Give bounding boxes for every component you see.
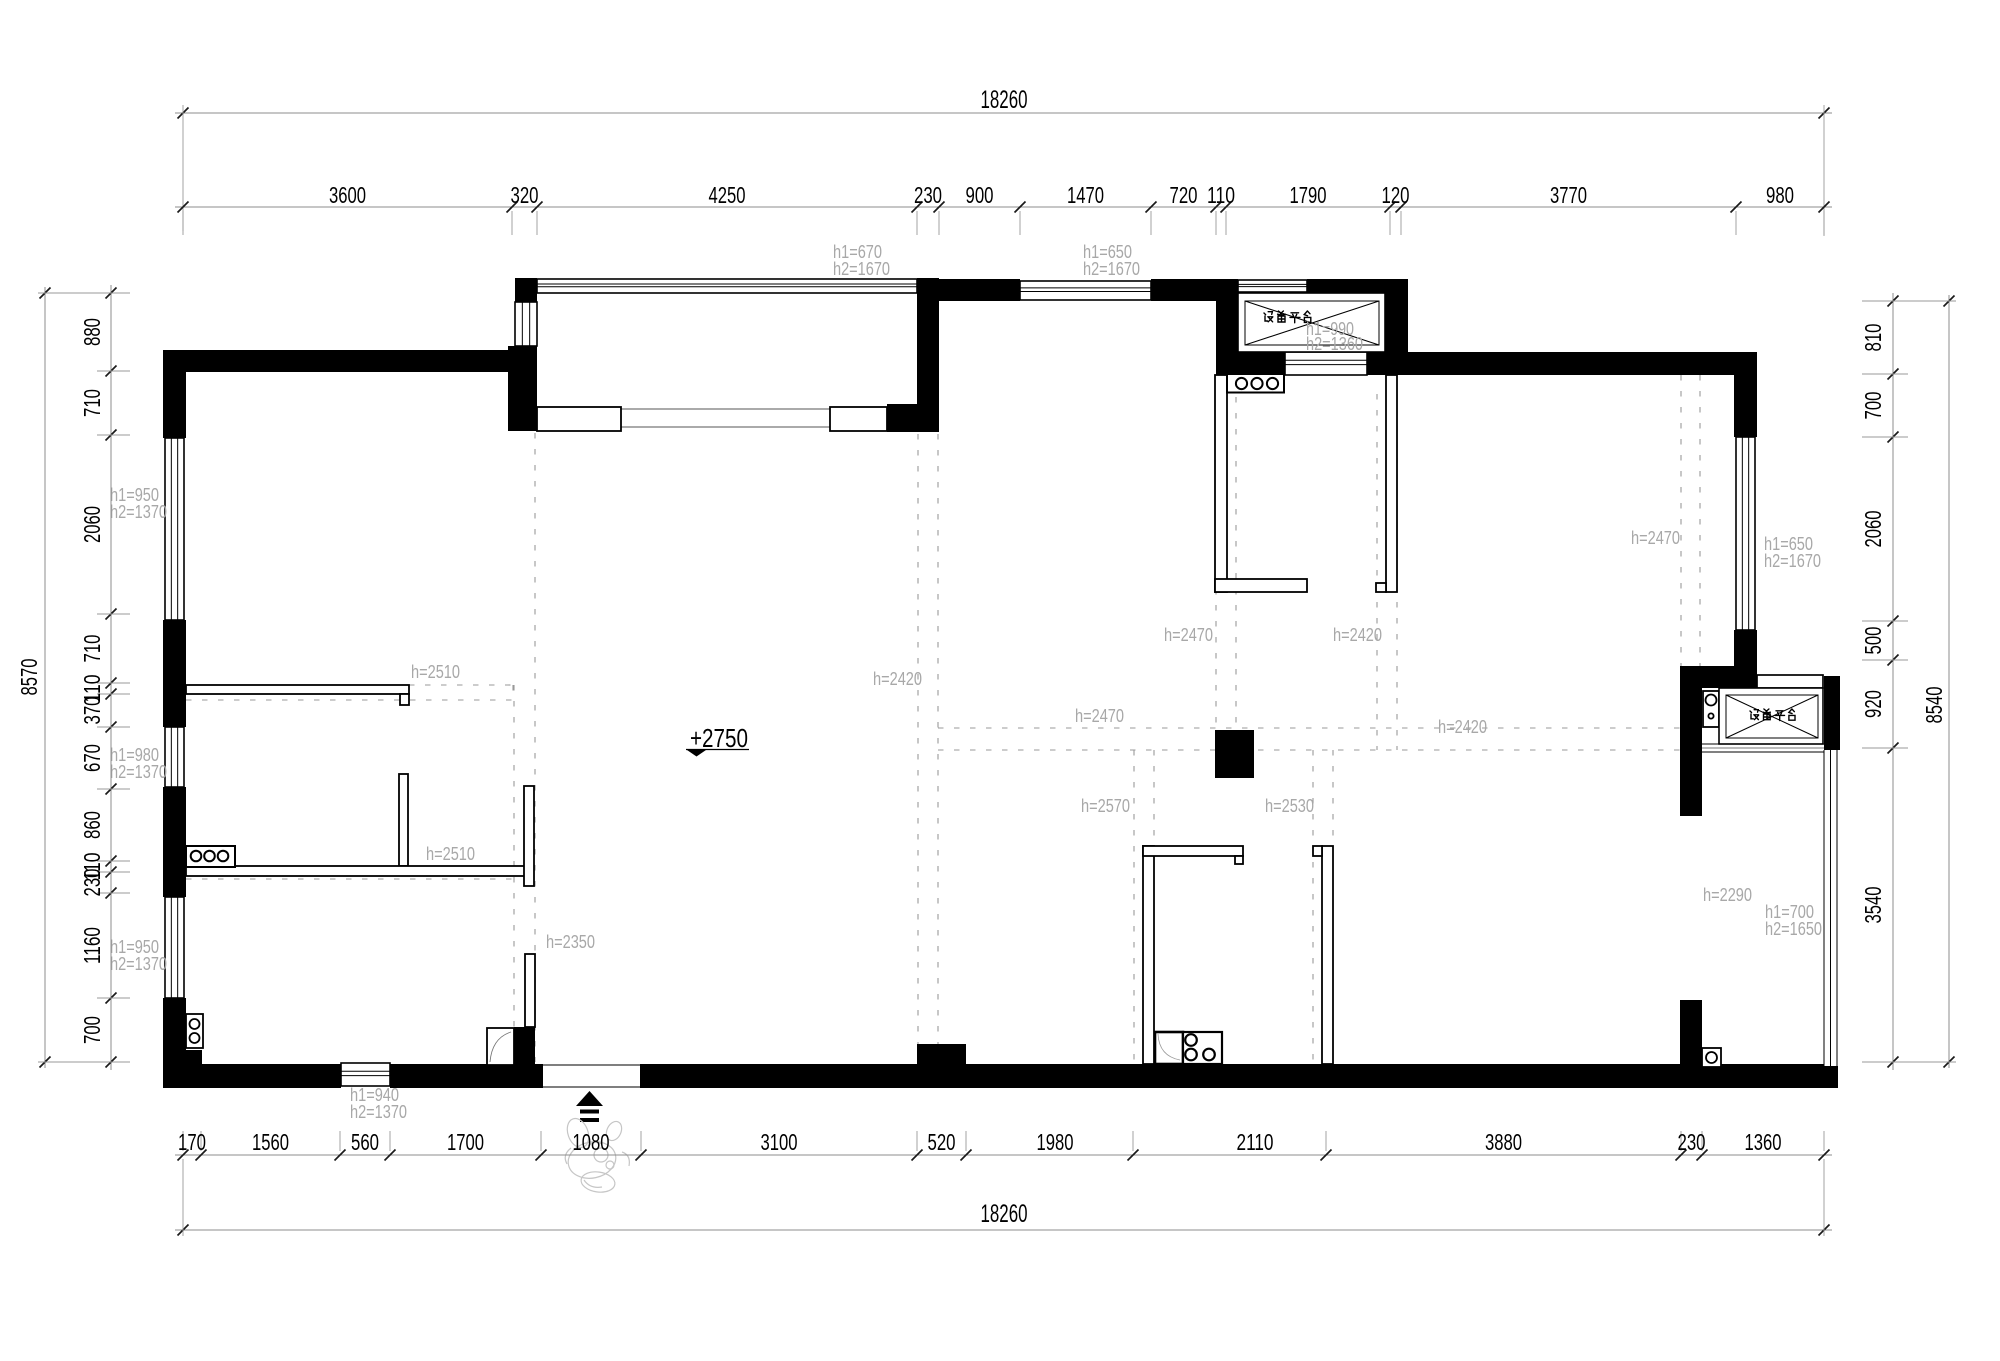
svg-text:980: 980 <box>1766 182 1794 208</box>
svg-text:720: 720 <box>1170 182 1198 208</box>
svg-text:1700: 1700 <box>447 1129 484 1155</box>
svg-text:120: 120 <box>1382 182 1410 208</box>
svg-text:880: 880 <box>79 318 105 346</box>
svg-text:3600: 3600 <box>329 182 366 208</box>
svg-text:230: 230 <box>1678 1129 1706 1155</box>
svg-text:h=2420: h=2420 <box>1438 717 1487 737</box>
svg-text:230: 230 <box>79 869 105 897</box>
svg-text:1560: 1560 <box>252 1129 289 1155</box>
svg-text:h=2530: h=2530 <box>1265 796 1314 816</box>
svg-text:700: 700 <box>1860 392 1886 420</box>
svg-text:2110: 2110 <box>1237 1129 1274 1155</box>
svg-text:920: 920 <box>1860 690 1886 718</box>
svg-text:170: 170 <box>178 1129 206 1155</box>
svg-text:h=2570: h=2570 <box>1081 796 1130 816</box>
svg-text:560: 560 <box>351 1129 379 1155</box>
svg-text:710: 710 <box>79 389 105 417</box>
svg-text:810: 810 <box>1860 324 1886 352</box>
svg-text:700: 700 <box>79 1016 105 1044</box>
svg-text:1080: 1080 <box>573 1129 610 1155</box>
svg-text:1160: 1160 <box>79 927 105 964</box>
svg-text:1980: 1980 <box>1037 1129 1074 1155</box>
svg-text:h=2470: h=2470 <box>1164 625 1213 645</box>
svg-text:320: 320 <box>511 182 539 208</box>
svg-text:3100: 3100 <box>761 1129 798 1155</box>
svg-text:+2750: +2750 <box>690 723 748 753</box>
svg-text:h2=1370: h2=1370 <box>110 954 167 974</box>
svg-text:h2=1370: h2=1370 <box>350 1102 407 1122</box>
svg-text:1470: 1470 <box>1067 182 1104 208</box>
svg-text:h=2420: h=2420 <box>873 669 922 689</box>
svg-text:2060: 2060 <box>1860 511 1886 548</box>
svg-text:h=2290: h=2290 <box>1703 885 1752 905</box>
svg-text:4250: 4250 <box>709 182 746 208</box>
svg-text:3770: 3770 <box>1550 182 1587 208</box>
svg-text:520: 520 <box>928 1129 956 1155</box>
svg-text:h=2510: h=2510 <box>411 662 460 682</box>
svg-text:h=2470: h=2470 <box>1631 528 1680 548</box>
svg-text:h2=1670: h2=1670 <box>1083 259 1140 279</box>
svg-text:3880: 3880 <box>1485 1129 1522 1155</box>
svg-text:8540: 8540 <box>1921 687 1947 724</box>
svg-text:110: 110 <box>1207 182 1235 208</box>
svg-text:h=2350: h=2350 <box>546 932 595 952</box>
svg-text:500: 500 <box>1860 627 1886 655</box>
svg-text:h2=1670: h2=1670 <box>1764 551 1821 571</box>
svg-text:h=2420: h=2420 <box>1333 625 1382 645</box>
svg-text:h=2510: h=2510 <box>426 844 475 864</box>
svg-text:h2=1670: h2=1670 <box>833 259 890 279</box>
svg-text:h2=1370: h2=1370 <box>110 502 167 522</box>
svg-text:1360: 1360 <box>1745 1129 1782 1155</box>
svg-text:860: 860 <box>79 811 105 839</box>
svg-text:370: 370 <box>79 697 105 725</box>
svg-text:900: 900 <box>966 182 994 208</box>
svg-text:1790: 1790 <box>1290 182 1327 208</box>
svg-text:2060: 2060 <box>79 506 105 543</box>
svg-text:710: 710 <box>79 635 105 663</box>
svg-text:230: 230 <box>914 182 942 208</box>
svg-text:h2=1650: h2=1650 <box>1765 919 1822 939</box>
svg-text:18260: 18260 <box>981 86 1028 114</box>
svg-text:670: 670 <box>79 744 105 772</box>
svg-text:h=2470: h=2470 <box>1075 706 1124 726</box>
svg-text:18260: 18260 <box>981 1200 1028 1228</box>
svg-text:8570: 8570 <box>16 659 42 696</box>
svg-text:h2=1370: h2=1370 <box>110 762 167 782</box>
svg-text:h2=1360: h2=1360 <box>1306 334 1363 354</box>
svg-text:3540: 3540 <box>1860 887 1886 924</box>
